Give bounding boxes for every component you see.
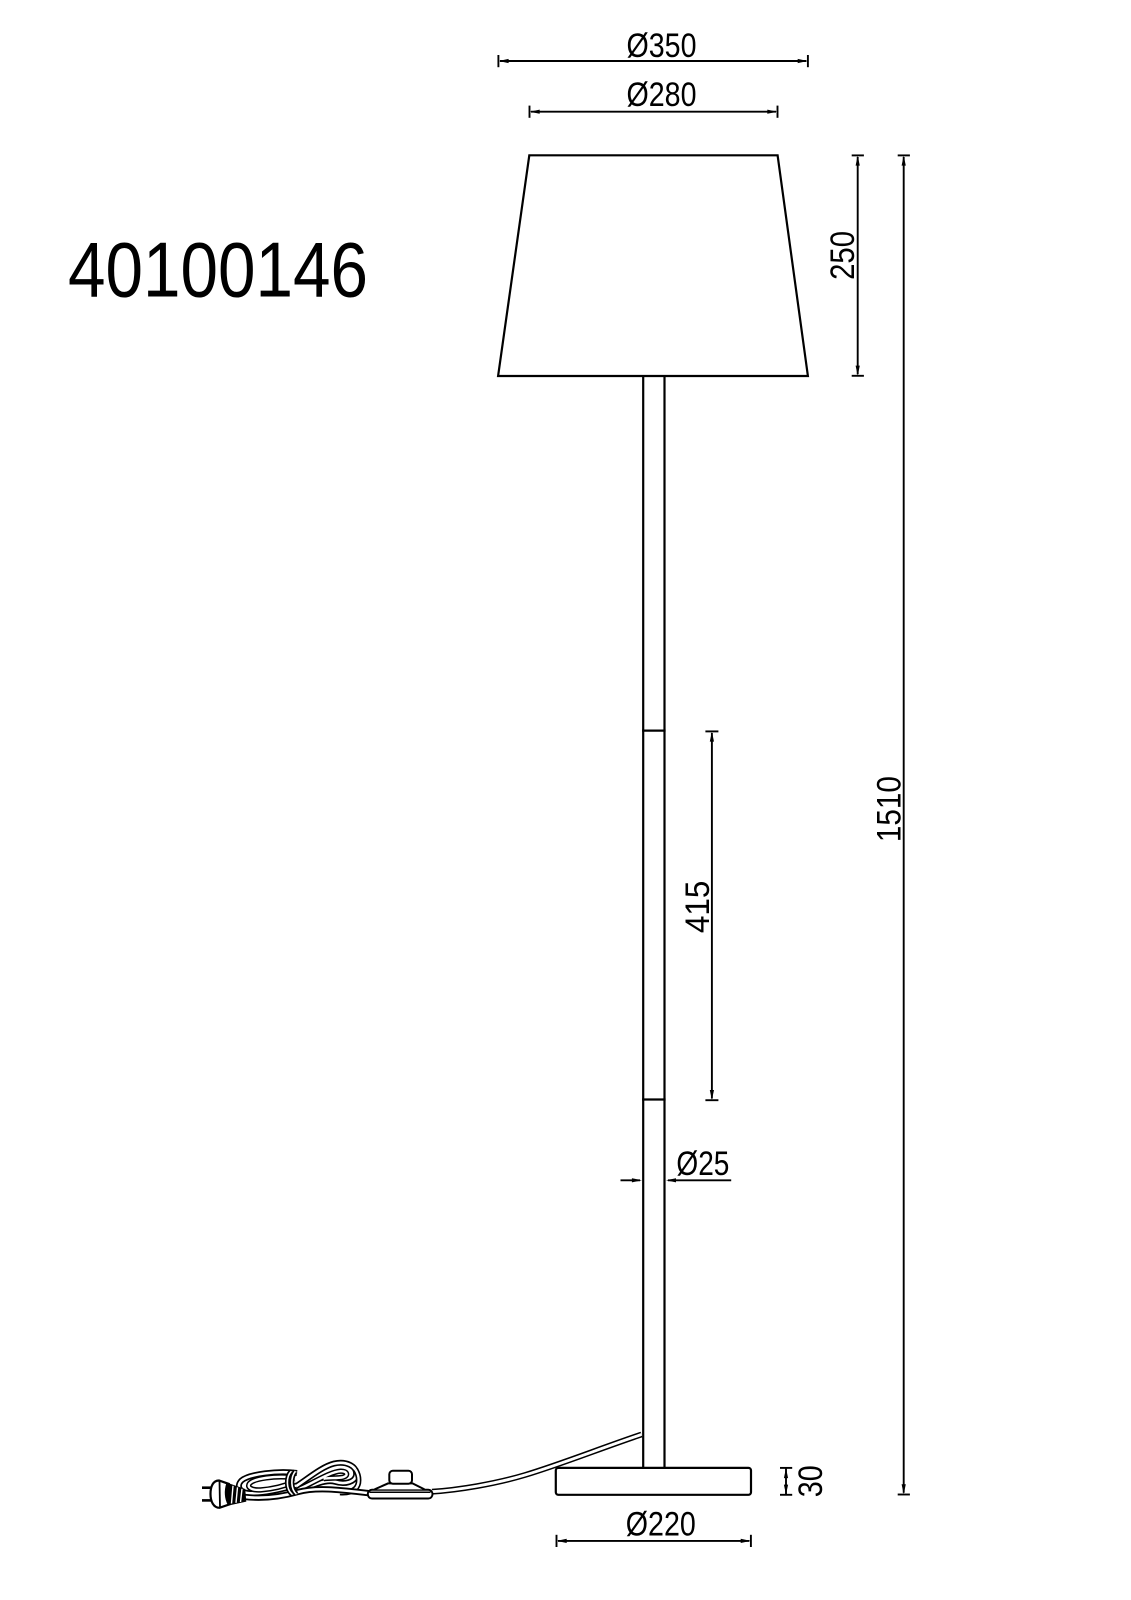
- svg-text:Ø350: Ø350: [627, 27, 697, 65]
- svg-text:30: 30: [792, 1465, 830, 1497]
- svg-text:Ø25: Ø25: [676, 1145, 729, 1183]
- svg-text:250: 250: [824, 231, 862, 280]
- svg-text:40100146: 40100146: [68, 226, 368, 314]
- svg-text:1510: 1510: [870, 776, 908, 842]
- svg-text:415: 415: [679, 881, 717, 934]
- svg-text:Ø280: Ø280: [627, 76, 697, 114]
- svg-text:Ø220: Ø220: [626, 1506, 696, 1544]
